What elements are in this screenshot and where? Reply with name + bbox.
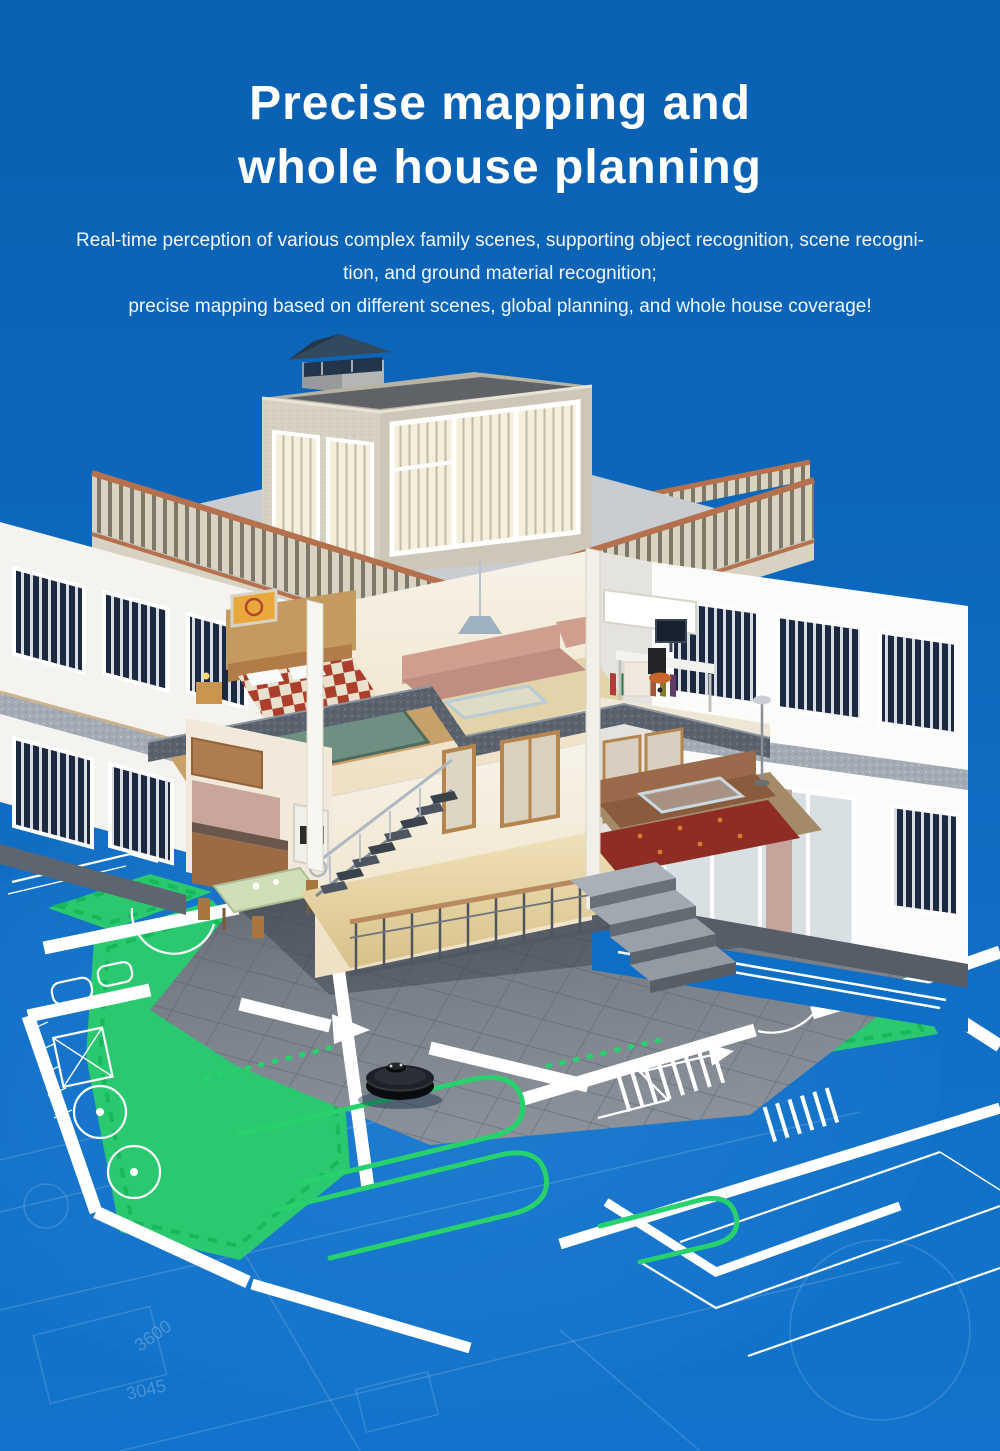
interior-door bbox=[444, 746, 474, 832]
wall-art bbox=[232, 590, 276, 626]
description-line2: tion, and ground material recognition; bbox=[0, 257, 1000, 290]
chair bbox=[252, 916, 264, 938]
bedside-lamp bbox=[203, 673, 210, 680]
penthouse bbox=[262, 334, 592, 574]
chimney-cap-front bbox=[288, 334, 392, 360]
burner-dot bbox=[96, 1108, 104, 1116]
floor-lamp-head bbox=[753, 696, 771, 705]
chair bbox=[198, 898, 210, 920]
chair-base bbox=[658, 688, 663, 693]
computer-monitor bbox=[656, 620, 686, 642]
desk-drawers bbox=[624, 662, 650, 696]
tableware bbox=[273, 879, 279, 885]
tableware bbox=[253, 883, 260, 890]
office-chair-back bbox=[648, 648, 666, 674]
lidar-dot bbox=[400, 1064, 403, 1067]
office-chair-seat bbox=[649, 673, 671, 684]
description-line1: Real-time perception of various complex … bbox=[0, 224, 1000, 257]
penthouse-window-band bbox=[392, 402, 578, 554]
chimney bbox=[288, 334, 392, 392]
cut-wall-edge bbox=[586, 548, 600, 912]
floor-lamp-base bbox=[754, 780, 770, 786]
lidar-dot bbox=[390, 1065, 393, 1068]
nightstand bbox=[196, 682, 222, 704]
description-line3: precise mapping based on different scene… bbox=[0, 290, 1000, 323]
headline: Precise mapping and whole house planning bbox=[0, 72, 1000, 200]
house-illustration: 3045 3600 bbox=[0, 0, 1000, 1451]
promo-banner: 3045 3600 bbox=[0, 0, 1000, 1451]
dimension-label: 3045 bbox=[124, 1375, 168, 1403]
burner-dot bbox=[130, 1168, 138, 1176]
cut-wall-edge bbox=[307, 600, 323, 872]
headline-line1: Precise mapping and bbox=[0, 72, 1000, 136]
description: Real-time perception of various complex … bbox=[0, 224, 1000, 323]
headline-line2: whole house planning bbox=[0, 136, 1000, 200]
